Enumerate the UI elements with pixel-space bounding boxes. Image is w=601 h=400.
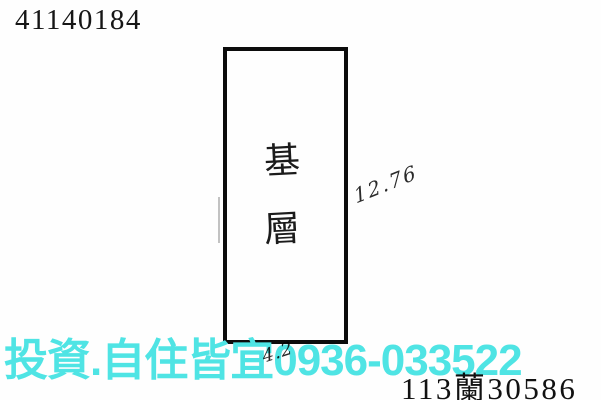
floor-label-char-base: 基 bbox=[263, 131, 302, 185]
handwritten-side-measurement: 12.76 bbox=[352, 160, 420, 209]
document-id: 41140184 bbox=[15, 4, 142, 37]
scan-artifact-line bbox=[218, 197, 220, 243]
survey-reference-number: 113蘭30586 bbox=[401, 363, 577, 400]
scanned-document-page: 41140184 基 層 12.76 4.2 投資.自住皆宜0936-03352… bbox=[0, 0, 601, 400]
floor-label-char-layer: 層 bbox=[263, 199, 302, 253]
floor-plan-rectangle bbox=[223, 47, 348, 344]
